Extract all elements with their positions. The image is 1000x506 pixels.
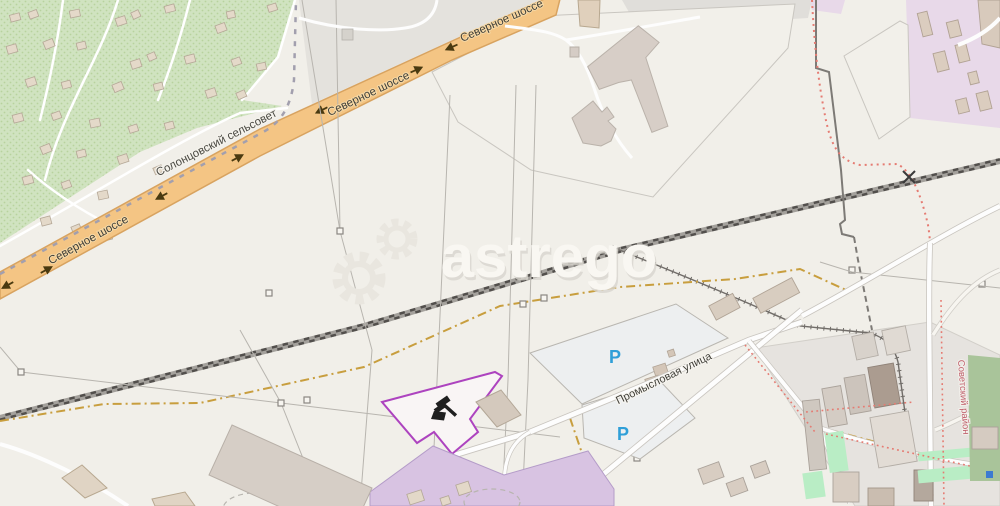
svg-text:P: P bbox=[617, 424, 629, 444]
svg-text:astrego: astrego bbox=[441, 223, 658, 290]
svg-text:P: P bbox=[609, 347, 621, 367]
